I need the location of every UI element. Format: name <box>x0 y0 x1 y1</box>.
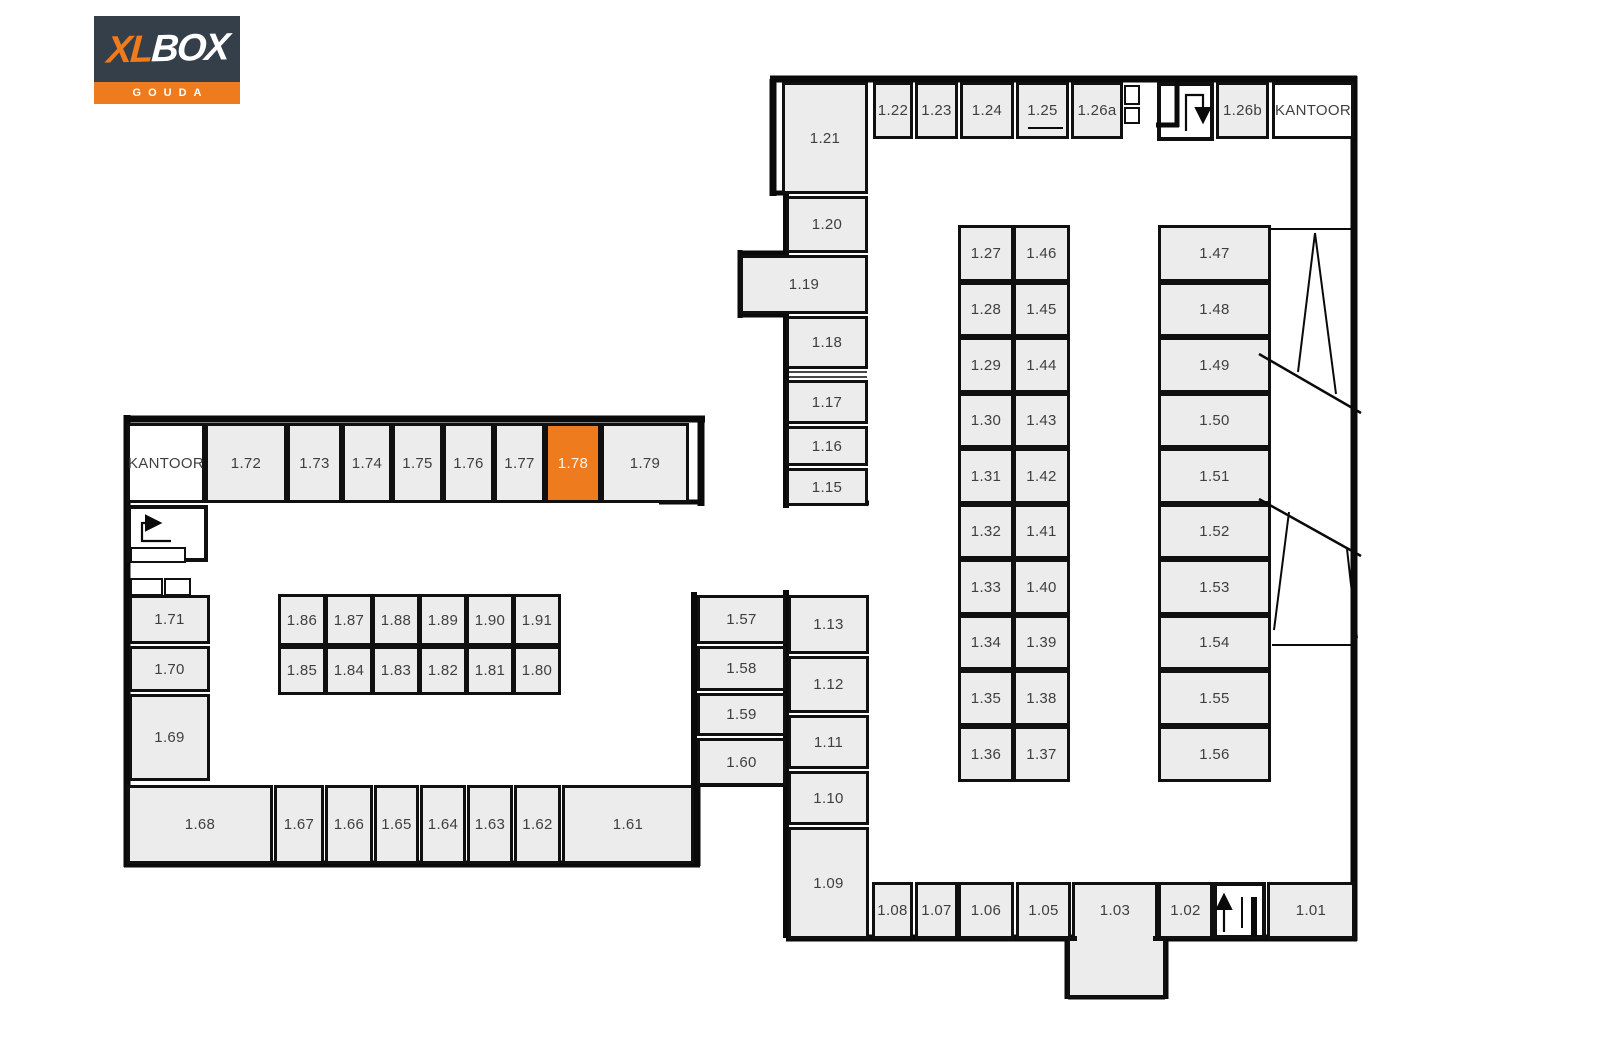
room-1-61[interactable]: 1.61 <box>562 785 694 864</box>
stairwell-bottom <box>1213 882 1266 939</box>
floorplan-canvas: XLBOX GOUDA KANTOOR1.721.731.741.751.761… <box>0 0 1600 1040</box>
room-1-07[interactable]: 1.07 <box>915 882 958 939</box>
room-1-74[interactable]: 1.74 <box>342 423 392 503</box>
room-1-13[interactable]: 1.13 <box>788 595 869 654</box>
stairwell-top <box>1157 82 1214 141</box>
room-1-91[interactable]: 1.91 <box>513 594 561 646</box>
room-1-58[interactable]: 1.58 <box>697 646 786 691</box>
room-1-67[interactable]: 1.67 <box>274 785 324 864</box>
room-1-20[interactable]: 1.20 <box>786 196 868 253</box>
room-1-06[interactable]: 1.06 <box>958 882 1014 939</box>
room-1-72[interactable]: 1.72 <box>205 423 287 503</box>
room-1-60[interactable]: 1.60 <box>697 738 786 786</box>
room-1-79[interactable]: 1.79 <box>601 423 689 503</box>
room-1-86[interactable]: 1.86 <box>278 594 326 646</box>
room-1-90[interactable]: 1.90 <box>466 594 514 646</box>
xlbox-logo-city-bar: GOUDA <box>94 82 240 104</box>
room-1-23[interactable]: 1.23 <box>915 82 958 139</box>
room-1-28[interactable]: 1.28 <box>958 282 1014 337</box>
room-1-45[interactable]: 1.45 <box>1013 282 1070 337</box>
room-1-52[interactable]: 1.52 <box>1158 504 1271 559</box>
room-1-26a[interactable]: 1.26a <box>1071 82 1123 139</box>
room-1-66[interactable]: 1.66 <box>325 785 373 864</box>
room-1-62[interactable]: 1.62 <box>514 785 561 864</box>
room-1-57[interactable]: 1.57 <box>697 595 786 644</box>
room-1-69[interactable]: 1.69 <box>129 694 210 781</box>
room-1-33[interactable]: 1.33 <box>958 559 1014 615</box>
room-1-10[interactable]: 1.10 <box>788 771 869 825</box>
room-1-38[interactable]: 1.38 <box>1013 670 1070 726</box>
logo-city-text: GOUDA <box>126 87 209 99</box>
room-1-65[interactable]: 1.65 <box>374 785 419 864</box>
room-1-44[interactable]: 1.44 <box>1013 337 1070 393</box>
xlbox-logo: XLBOX GOUDA <box>88 12 246 104</box>
room-1-78[interactable]: 1.78 <box>545 423 601 503</box>
closet-left-b <box>164 578 191 596</box>
xlbox-logo-text: XLBOX <box>105 28 228 69</box>
room-1-18[interactable]: 1.18 <box>786 316 868 369</box>
room-1-09[interactable]: 1.09 <box>788 827 869 939</box>
stair-landing-left <box>130 547 186 563</box>
room-1-24[interactable]: 1.24 <box>960 82 1014 139</box>
room-1-31[interactable]: 1.31 <box>958 448 1014 504</box>
room-1-68[interactable]: 1.68 <box>127 785 273 864</box>
room-1-16[interactable]: 1.16 <box>786 426 868 466</box>
room-1-84[interactable]: 1.84 <box>325 646 373 695</box>
plan-line <box>1315 233 1336 394</box>
room-1-83[interactable]: 1.83 <box>372 646 420 695</box>
room-1-02[interactable]: 1.02 <box>1158 882 1213 939</box>
room-1-01[interactable]: 1.01 <box>1267 882 1355 939</box>
room-1-88[interactable]: 1.88 <box>372 594 420 646</box>
room-1-59[interactable]: 1.59 <box>697 693 786 736</box>
room-1-26b[interactable]: 1.26b <box>1216 82 1269 139</box>
room-1-51[interactable]: 1.51 <box>1158 448 1271 504</box>
kantoor-right[interactable]: KANTOOR <box>1272 82 1354 139</box>
room-1-15[interactable]: 1.15 <box>786 468 868 506</box>
room-1-55[interactable]: 1.55 <box>1158 670 1271 726</box>
room-1-80[interactable]: 1.80 <box>513 646 561 695</box>
room-1-36[interactable]: 1.36 <box>958 726 1014 782</box>
room-1-25[interactable]: 1.25 <box>1016 82 1069 139</box>
room-1-48[interactable]: 1.48 <box>1158 282 1271 337</box>
room-1-21[interactable]: 1.21 <box>782 82 868 194</box>
room-1-12[interactable]: 1.12 <box>788 656 869 713</box>
room-1-87[interactable]: 1.87 <box>325 594 373 646</box>
room-1-42[interactable]: 1.42 <box>1013 448 1070 504</box>
closet-left-a <box>130 578 163 596</box>
room-1-50[interactable]: 1.50 <box>1158 393 1271 448</box>
room-1-37[interactable]: 1.37 <box>1013 726 1070 782</box>
room-1-64[interactable]: 1.64 <box>420 785 466 864</box>
room-1-56[interactable]: 1.56 <box>1158 726 1271 782</box>
room-1-63[interactable]: 1.63 <box>467 785 513 864</box>
plan-line <box>1298 233 1315 372</box>
room-1-11[interactable]: 1.11 <box>788 715 869 769</box>
room-1-70[interactable]: 1.70 <box>129 646 210 692</box>
xlbox-logo-wordmark: XLBOX <box>94 16 240 82</box>
logo-xl-text: XL <box>105 28 152 71</box>
room-1-08[interactable]: 1.08 <box>872 882 913 939</box>
shaft-top-a <box>1124 85 1140 105</box>
room-1-89[interactable]: 1.89 <box>419 594 467 646</box>
room-1-30[interactable]: 1.30 <box>958 393 1014 448</box>
room-1-40[interactable]: 1.40 <box>1013 559 1070 615</box>
room-1-03-annex <box>1067 938 1166 998</box>
logo-box-text: BOX <box>150 26 229 70</box>
room-1-47[interactable]: 1.47 <box>1158 225 1271 282</box>
room-1-05[interactable]: 1.05 <box>1016 882 1071 939</box>
room-1-35[interactable]: 1.35 <box>958 670 1014 726</box>
room-1-22[interactable]: 1.22 <box>873 82 913 139</box>
room-1-32[interactable]: 1.32 <box>958 504 1014 559</box>
room-1-41[interactable]: 1.41 <box>1013 504 1070 559</box>
room-1-39[interactable]: 1.39 <box>1013 615 1070 670</box>
kantoor-left[interactable]: KANTOOR <box>127 423 205 503</box>
room-1-71[interactable]: 1.71 <box>129 595 210 644</box>
room-1-17[interactable]: 1.17 <box>786 380 868 424</box>
room-1-29[interactable]: 1.29 <box>958 337 1014 393</box>
room-1-46[interactable]: 1.46 <box>1013 225 1070 282</box>
plan-line <box>1259 499 1361 556</box>
room-1-75[interactable]: 1.75 <box>392 423 443 503</box>
room-1-49[interactable]: 1.49 <box>1158 337 1271 393</box>
room-1-53[interactable]: 1.53 <box>1158 559 1271 615</box>
room-1-73[interactable]: 1.73 <box>287 423 342 503</box>
room-1-77[interactable]: 1.77 <box>494 423 545 503</box>
room-1-03-join <box>1077 930 1153 944</box>
plan-line <box>1274 512 1289 630</box>
room-1-34[interactable]: 1.34 <box>958 615 1014 670</box>
room-1-54[interactable]: 1.54 <box>1158 615 1271 670</box>
room-1-76[interactable]: 1.76 <box>443 423 494 503</box>
room-1-82[interactable]: 1.82 <box>419 646 467 695</box>
room-1-19[interactable]: 1.19 <box>740 255 868 314</box>
shaft-top-b <box>1124 107 1140 124</box>
plan-line <box>1347 549 1357 638</box>
room-1-43[interactable]: 1.43 <box>1013 393 1070 448</box>
room-1-81[interactable]: 1.81 <box>466 646 514 695</box>
room-1-27[interactable]: 1.27 <box>958 225 1014 282</box>
room-1-85[interactable]: 1.85 <box>278 646 326 695</box>
plan-line <box>1259 354 1361 413</box>
